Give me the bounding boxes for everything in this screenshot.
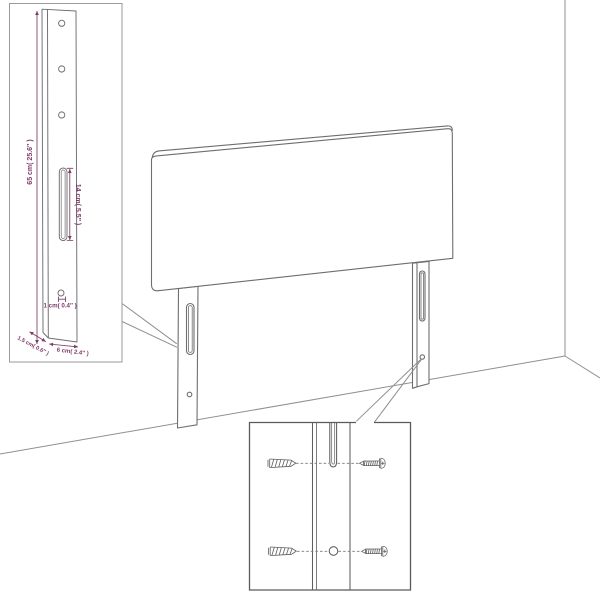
headboard-panel (152, 129, 453, 291)
slot-dim-label: 14 cm( 5.5″ ) (74, 184, 81, 225)
detail-box-left: 65 cm( 25.6″ ) 14 cm( 5.5″ ) 1 cm( 0.4″ … (10, 4, 123, 363)
callout-line-right-1 (356, 359, 421, 422)
headboard (152, 126, 453, 428)
height-dim-label: 65 cm( 25.6″ ) (27, 139, 34, 184)
callout-line-right-2 (374, 359, 422, 423)
detail-box-bottom-right (250, 423, 411, 591)
leg-post-drawing (42, 9, 77, 342)
headboard-left-leg (178, 286, 199, 428)
callout-line-left-2 (122, 322, 177, 348)
left-leg-shape (178, 286, 199, 428)
callout-lines-left (122, 304, 177, 348)
headboard-right-leg (413, 261, 430, 388)
floor-line-right (565, 356, 600, 378)
callout-line-left-1 (122, 304, 177, 344)
hole-dim-label: 1 cm( 0.4″ ) (44, 303, 77, 310)
product-assembly-diagram: 65 cm( 25.6″ ) 14 cm( 5.5″ ) 1 cm( 0.4″ … (0, 0, 600, 600)
diagram-canvas: 65 cm( 25.6″ ) 14 cm( 5.5″ ) 1 cm( 0.4″ … (0, 0, 600, 600)
